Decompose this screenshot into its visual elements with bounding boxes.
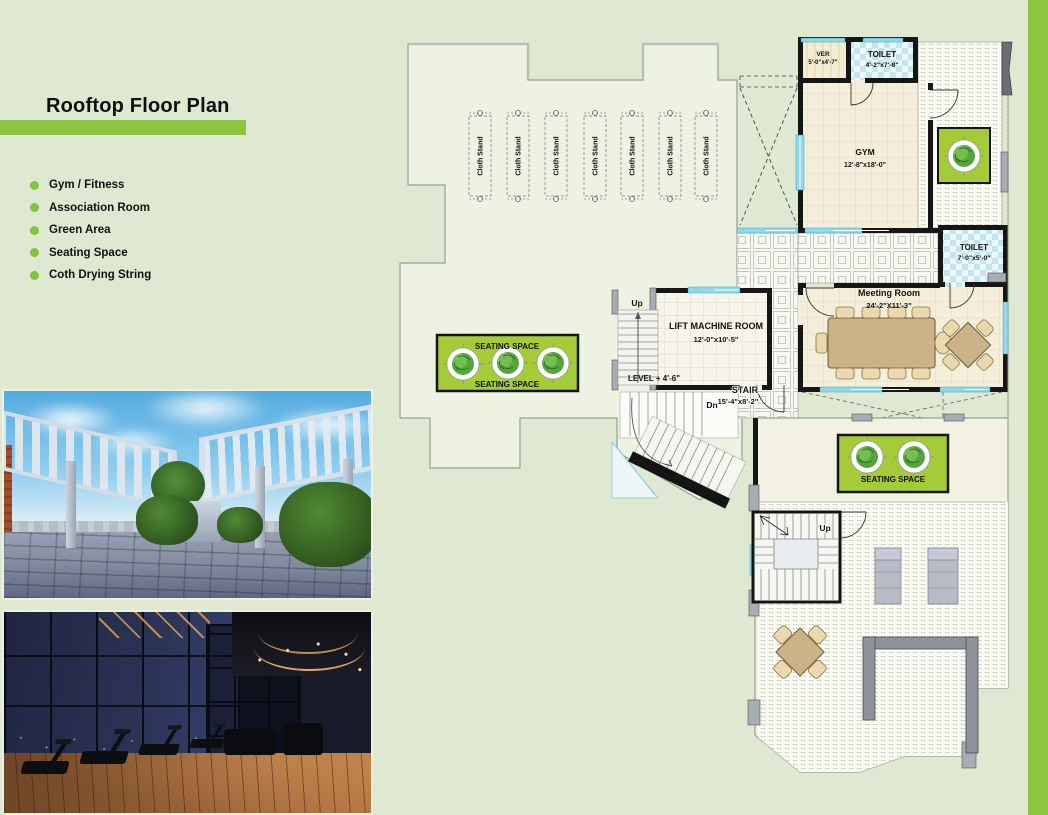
bullet-dot-icon [30, 271, 39, 280]
gym-equipment-silhouette [283, 723, 323, 755]
seating-space-label: SEATING SPACE [475, 380, 540, 389]
led-strip [99, 612, 209, 638]
floor-plan: Cloth Stand Cloth Stand Cloth Stand Clot… [392, 30, 1040, 790]
brochure-page: Rooftop Floor Plan Gym / Fitness Associa… [0, 0, 1048, 815]
rooftop-photo [2, 389, 373, 600]
treadmill-silhouette [189, 739, 224, 748]
cloth-stand-label: Cloth Stand [554, 136, 561, 175]
lift-machine-room-dims: 12'-0"x10'-5" [694, 335, 739, 344]
down-label: Dn [706, 400, 717, 410]
bullet-dot-icon [30, 226, 39, 235]
legend-item: Seating Space [30, 242, 151, 265]
seating-space-label: SEATING SPACE [475, 342, 540, 351]
bush [136, 495, 198, 545]
conference-table [828, 318, 935, 368]
legend-list: Gym / Fitness Association Room Green Are… [30, 174, 151, 287]
bush [217, 507, 263, 543]
cloth-stand-label: Cloth Stand [516, 136, 523, 175]
seating-space-label: SEATING SPACE [861, 475, 926, 484]
up-label: Up [819, 523, 830, 533]
legend-item: Gym / Fitness [30, 174, 151, 197]
legend-label: Seating Space [49, 247, 128, 259]
bullet-dot-icon [30, 203, 39, 212]
legend-label: Coth Drying String [49, 269, 151, 281]
title-underline-bar [0, 120, 246, 135]
legend-item: Green Area [30, 219, 151, 242]
legend-label: Green Area [49, 224, 111, 236]
toilet-top-dims: 4'-2"x7'-8" [865, 62, 898, 69]
cloth-stand-label: Cloth Stand [704, 136, 711, 175]
cloth-stand-label: Cloth Stand [593, 136, 600, 175]
legend-item: Association Room [30, 197, 151, 220]
bullet-dot-icon [30, 181, 39, 190]
treadmill-silhouette [138, 744, 180, 755]
ver-label: VER [816, 51, 830, 58]
downlights [232, 612, 371, 676]
lift-machine-room-label: LIFT MACHINE ROOM [669, 321, 763, 331]
pergola-post [66, 461, 76, 548]
gym-label: GYM [855, 147, 874, 157]
legend-item: Coth Drying String [30, 264, 151, 287]
bullet-dot-icon [30, 248, 39, 257]
legend-label: Gym / Fitness [49, 179, 124, 191]
cloth-stand-label: Cloth Stand [630, 136, 637, 175]
toilet-top-room [851, 42, 913, 80]
toilet-right-label: TOILET [960, 243, 988, 252]
treadmill-silhouette [20, 761, 70, 774]
gym-dims: 12'-8"x18'-0" [844, 162, 886, 169]
ceiling-panel [232, 612, 371, 676]
cloth-stand-label: Cloth Stand [478, 136, 485, 175]
level-label: LEVEL + 4'-6" [628, 374, 680, 383]
gym-equipment-silhouette [224, 729, 276, 755]
treadmill-silhouette [79, 751, 129, 764]
stair-label: STAIR [732, 385, 759, 395]
up-label: Up [631, 298, 642, 308]
meeting-room-dims: 24'-2"X11'-3" [866, 301, 912, 310]
toilet-right-dims: 7'-0"x5'-0" [957, 255, 990, 262]
page-title: Rooftop Floor Plan [46, 95, 230, 118]
toilet-top-label: TOILET [868, 50, 896, 59]
bush [279, 482, 373, 567]
ver-dims: 5'-0"x4'-7" [808, 60, 837, 66]
stair-dims: 15'-4"x8'-2" [718, 397, 759, 406]
legend-label: Association Room [49, 202, 150, 214]
page-edge-strip [1028, 0, 1048, 815]
cloth-stand-label: Cloth Stand [668, 136, 675, 175]
gym-photo [2, 610, 373, 815]
meeting-room-label: Meeting Room [858, 288, 920, 298]
